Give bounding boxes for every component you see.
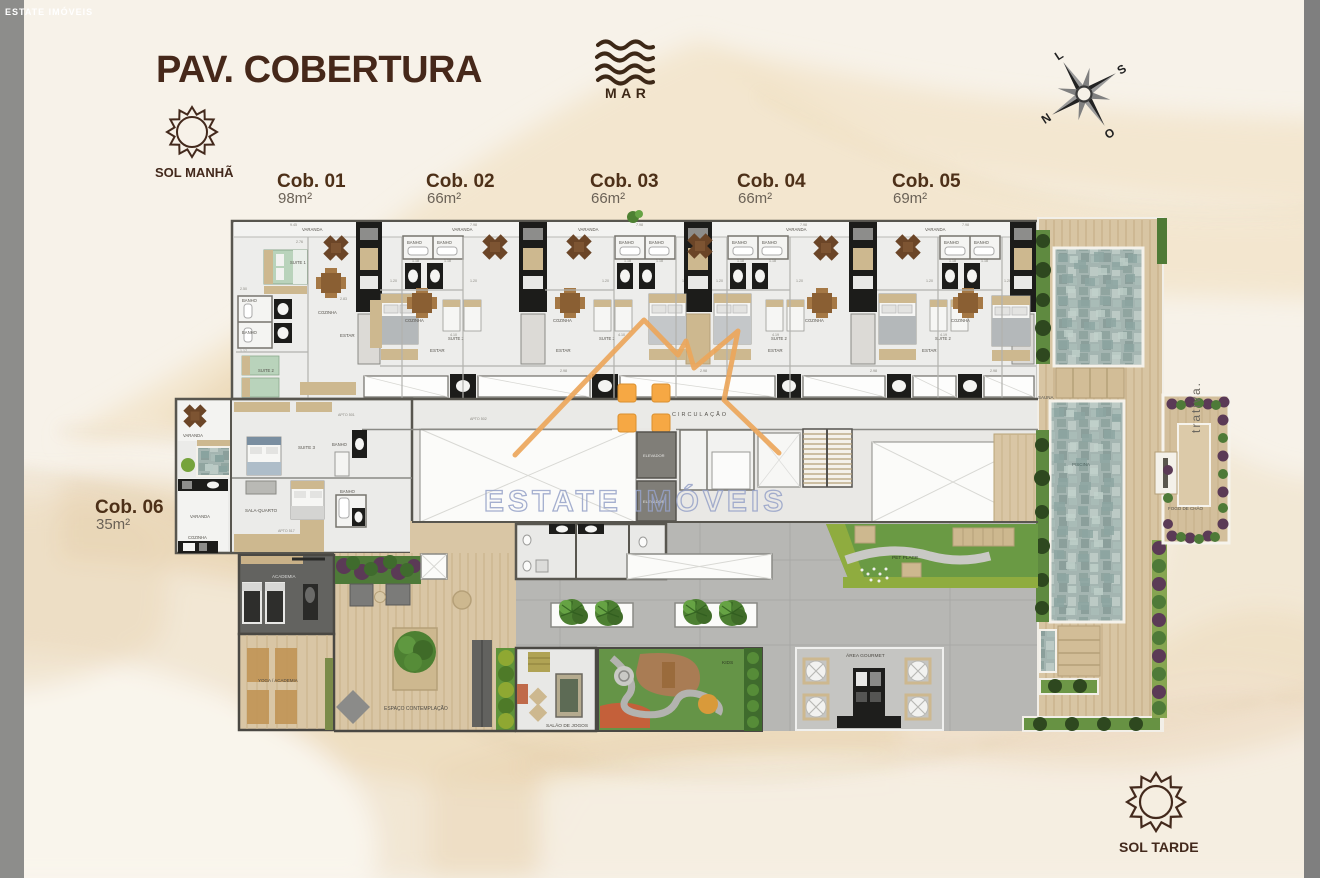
svg-text:trativa.: trativa. bbox=[1189, 381, 1203, 433]
svg-text:4.10: 4.10 bbox=[618, 333, 625, 337]
svg-text:SUITE 2: SUITE 2 bbox=[448, 336, 464, 341]
svg-text:COZINHA: COZINHA bbox=[805, 318, 824, 323]
svg-text:KIDS: KIDS bbox=[722, 660, 733, 666]
svg-text:ACADEMIA: ACADEMIA bbox=[272, 574, 296, 579]
svg-text:Cob. 05: Cob. 05 bbox=[892, 171, 961, 192]
svg-text:BANHO: BANHO bbox=[437, 240, 453, 245]
svg-text:VARANDA: VARANDA bbox=[578, 227, 599, 232]
svg-text:ESTAR: ESTAR bbox=[556, 348, 571, 353]
svg-text:FOGO DE CHÃO: FOGO DE CHÃO bbox=[1168, 505, 1204, 511]
svg-text:SUITE 2: SUITE 2 bbox=[599, 336, 615, 341]
svg-text:Cob. 06: Cob. 06 bbox=[95, 497, 164, 518]
svg-text:1.20: 1.20 bbox=[926, 279, 933, 283]
svg-text:Cob. 01: Cob. 01 bbox=[277, 171, 346, 192]
svg-text:7.98: 7.98 bbox=[800, 223, 807, 227]
svg-text:BANHO: BANHO bbox=[242, 298, 258, 303]
svg-text:SALÃO DE JOGOS: SALÃO DE JOGOS bbox=[546, 722, 588, 729]
svg-text:ESTATE IMÓVEIS: ESTATE IMÓVEIS bbox=[5, 6, 93, 17]
svg-text:BANHO: BANHO bbox=[974, 240, 990, 245]
svg-text:35m²: 35m² bbox=[96, 516, 130, 533]
svg-text:ESTAR: ESTAR bbox=[430, 348, 445, 353]
svg-text:69m²: 69m² bbox=[893, 190, 927, 207]
svg-text:SUITE 2: SUITE 2 bbox=[258, 368, 274, 373]
svg-text:ESTATE IMÓVEIS: ESTATE IMÓVEIS bbox=[484, 484, 787, 518]
svg-text:SUITE 1: SUITE 1 bbox=[290, 260, 306, 265]
svg-text:APTO 517: APTO 517 bbox=[278, 529, 295, 533]
svg-text:YOGA / ACADEMIA: YOGA / ACADEMIA bbox=[258, 678, 298, 683]
svg-text:ESTAR: ESTAR bbox=[340, 333, 355, 338]
svg-text:2.98: 2.98 bbox=[560, 369, 567, 373]
svg-text:VARANDA: VARANDA bbox=[302, 227, 323, 232]
svg-text:SALA-QUARTO: SALA-QUARTO bbox=[245, 508, 278, 513]
svg-text:1.20: 1.20 bbox=[716, 279, 723, 283]
svg-text:2.50: 2.50 bbox=[240, 287, 247, 291]
svg-text:BANHO: BANHO bbox=[732, 240, 748, 245]
svg-text:98m²: 98m² bbox=[278, 190, 312, 207]
svg-text:1.20: 1.20 bbox=[602, 279, 609, 283]
svg-text:1.20: 1.20 bbox=[390, 279, 397, 283]
svg-text:APTO 501: APTO 501 bbox=[338, 413, 355, 417]
svg-text:ELEVADOR: ELEVADOR bbox=[643, 453, 665, 458]
svg-text:BANHO: BANHO bbox=[242, 330, 258, 335]
svg-text:VARANDA: VARANDA bbox=[786, 227, 807, 232]
svg-text:66m²: 66m² bbox=[591, 190, 625, 207]
svg-text:BANHO: BANHO bbox=[332, 442, 348, 447]
svg-text:BANHO: BANHO bbox=[407, 240, 423, 245]
svg-text:BANHO: BANHO bbox=[649, 240, 665, 245]
svg-text:COZINHA: COZINHA bbox=[405, 318, 424, 323]
svg-text:7.98: 7.98 bbox=[636, 223, 643, 227]
svg-text:APTO 502: APTO 502 bbox=[470, 417, 487, 421]
svg-text:VARANDA: VARANDA bbox=[190, 514, 210, 519]
svg-text:BANHO: BANHO bbox=[340, 489, 356, 494]
svg-text:7.98: 7.98 bbox=[470, 223, 477, 227]
svg-text:SUITE 2: SUITE 2 bbox=[771, 336, 787, 341]
svg-text:1.20: 1.20 bbox=[470, 279, 477, 283]
svg-text:ESTAR: ESTAR bbox=[922, 348, 937, 353]
svg-text:2.98: 2.98 bbox=[700, 369, 707, 373]
svg-text:2.98: 2.98 bbox=[870, 369, 877, 373]
svg-text:COZINHA: COZINHA bbox=[318, 310, 337, 315]
svg-text:COZINHA: COZINHA bbox=[553, 318, 572, 323]
svg-text:BANHO: BANHO bbox=[944, 240, 960, 245]
svg-text:1.20: 1.20 bbox=[1004, 279, 1011, 283]
svg-text:ESPAÇO CONTEMPLAÇÃO: ESPAÇO CONTEMPLAÇÃO bbox=[384, 705, 448, 712]
svg-text:ESTAR: ESTAR bbox=[768, 348, 783, 353]
svg-text:CIRCULAÇÃO: CIRCULAÇÃO bbox=[672, 411, 728, 418]
svg-text:2.76: 2.76 bbox=[296, 240, 303, 244]
svg-text:Cob. 02: Cob. 02 bbox=[426, 171, 495, 192]
svg-text:SUITE 3: SUITE 3 bbox=[298, 445, 316, 450]
svg-text:Cob. 04: Cob. 04 bbox=[737, 171, 806, 192]
svg-text:SAUNA: SAUNA bbox=[1038, 395, 1054, 400]
svg-text:VARANDA: VARANDA bbox=[452, 227, 473, 232]
svg-text:MAR: MAR bbox=[605, 85, 650, 101]
svg-text:COZINHA: COZINHA bbox=[188, 535, 207, 540]
svg-text:7.98: 7.98 bbox=[962, 223, 969, 227]
svg-text:Cob. 03: Cob. 03 bbox=[590, 171, 659, 192]
svg-text:PET PLACE: PET PLACE bbox=[892, 555, 918, 561]
svg-text:COZINHA: COZINHA bbox=[951, 318, 970, 323]
svg-text:2.83: 2.83 bbox=[340, 297, 347, 301]
svg-text:BANHO: BANHO bbox=[619, 240, 635, 245]
svg-text:ÁREA GOURMET: ÁREA GOURMET bbox=[846, 652, 885, 659]
svg-text:1.20: 1.20 bbox=[796, 279, 803, 283]
svg-text:SOL TARDE: SOL TARDE bbox=[1119, 839, 1199, 855]
svg-text:9.45: 9.45 bbox=[290, 223, 297, 227]
svg-text:VARANDA: VARANDA bbox=[183, 433, 203, 438]
svg-text:BANHO: BANHO bbox=[762, 240, 778, 245]
svg-text:2.98: 2.98 bbox=[990, 369, 997, 373]
svg-text:PAV. COBERTURA: PAV. COBERTURA bbox=[156, 49, 482, 91]
svg-text:66m²: 66m² bbox=[427, 190, 461, 207]
svg-text:PISCINA: PISCINA bbox=[1072, 462, 1090, 467]
svg-text:66m²: 66m² bbox=[738, 190, 772, 207]
svg-text:SOL MANHÃ: SOL MANHÃ bbox=[155, 165, 234, 180]
svg-text:VARANDA: VARANDA bbox=[925, 227, 946, 232]
